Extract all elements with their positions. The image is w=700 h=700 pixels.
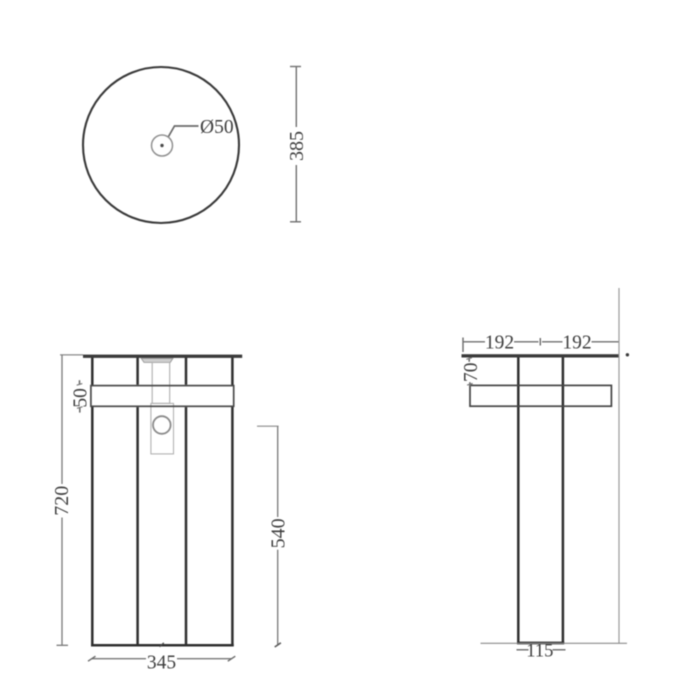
svg-text:70: 70 (461, 362, 482, 382)
svg-text:540: 540 (267, 518, 289, 548)
svg-text:Ø50: Ø50 (200, 117, 234, 138)
svg-text:385: 385 (286, 131, 308, 161)
svg-text:720: 720 (51, 486, 73, 516)
svg-text:192: 192 (485, 332, 514, 353)
svg-text:50: 50 (71, 388, 92, 408)
svg-text:115: 115 (526, 642, 553, 662)
svg-text:192: 192 (562, 332, 591, 353)
svg-text:345: 345 (147, 652, 176, 673)
